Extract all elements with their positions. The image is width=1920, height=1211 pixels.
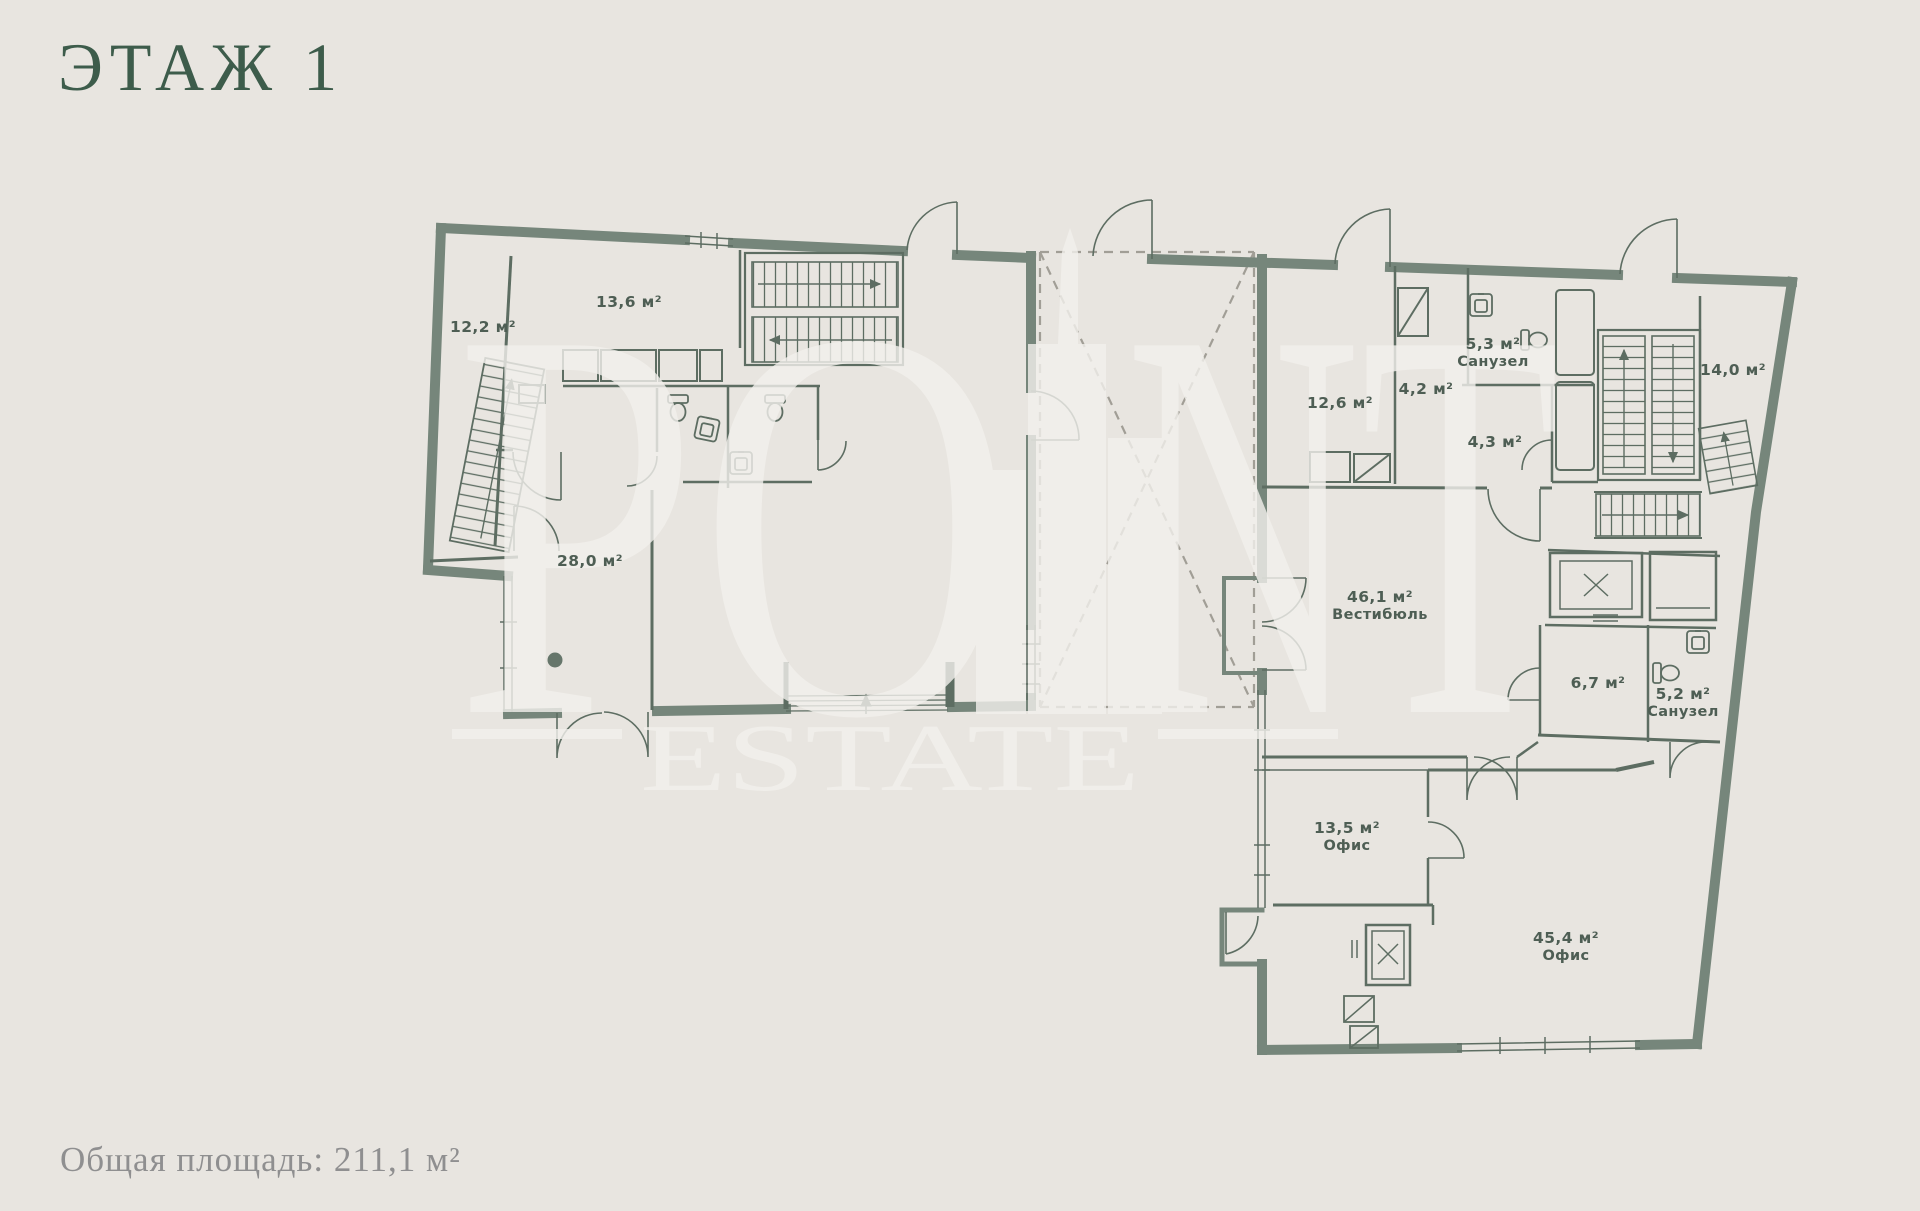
- watermark-text-estate: ESTATE: [640, 704, 1140, 811]
- room-area-label-room-28-0: 28,0 м²: [557, 552, 623, 570]
- staircase-left-room-icon: [450, 358, 544, 552]
- staircase-right-lower-icon: [1596, 494, 1700, 536]
- room-name-label-room-46-1: Вестибюль: [1332, 607, 1428, 623]
- left-building-fixtures: [548, 395, 786, 668]
- toilet-icon: [1521, 330, 1547, 350]
- floor-plan-page: ЭТАЖ 1: [0, 0, 1920, 1211]
- room-name-label-room-13-5: Офис: [1323, 838, 1370, 854]
- sink-icon: [694, 416, 720, 442]
- floor-plan-drawing: PO NT ESTATE 12,2 м²13,6 м²28,0 м²12,6 м…: [0, 0, 1920, 1211]
- watermark-rule-left: [452, 729, 622, 739]
- staircase-central-icon: [745, 253, 903, 365]
- right-building-doors: [1093, 200, 1706, 954]
- total-area-note: Общая площадь: 211,1 м²: [60, 1140, 461, 1180]
- watermark-text-po: PO: [455, 214, 1015, 834]
- room-name-label-room-5-2: Санузел: [1647, 704, 1719, 720]
- right-building-outer-walls: [1152, 259, 1792, 1050]
- room-area-label-room-12-2: 12,2 м²: [450, 318, 516, 336]
- toilet-icon: [765, 395, 785, 421]
- watermark-rule-right: [1158, 729, 1338, 739]
- column-marker: [548, 653, 563, 668]
- room-area-label-room-12-6: 12,6 м²: [1307, 394, 1373, 412]
- sink-icon: [1687, 631, 1709, 653]
- courtyard-dashed-area: [1040, 252, 1254, 707]
- room-area-label-room-5-2: 5,2 м²: [1656, 685, 1711, 703]
- room-area-label-room-4-3: 4,3 м²: [1468, 433, 1523, 451]
- room-area-label-room-6-7: 6,7 м²: [1571, 674, 1626, 692]
- room-area-label-room-45-4: 45,4 м²: [1533, 929, 1599, 947]
- right-building-windows: [1254, 690, 1640, 1054]
- room-name-label-room-5-3: Санузел: [1457, 354, 1529, 370]
- room-name-label-room-45-4: Офис: [1542, 948, 1589, 964]
- room-area-label-room-13-5: 13,5 м²: [1314, 819, 1380, 837]
- room-area-label-room-4-2: 4,2 м²: [1399, 380, 1454, 398]
- room-area-label-room-13-6: 13,6 м²: [596, 293, 662, 311]
- elevator-icon: [1344, 925, 1410, 1048]
- sink-icon: [730, 452, 752, 474]
- staircase-right-upper-icon: [1598, 330, 1700, 480]
- staircase-small-icon: [1699, 420, 1758, 493]
- toilet-icon: [668, 395, 688, 421]
- watermark-tower-icon: [976, 228, 1162, 714]
- room-area-label-room-14-0: 14,0 м²: [1700, 361, 1766, 379]
- toilet-icon: [1653, 663, 1679, 683]
- watermark-text-nt: NT: [1125, 214, 1560, 834]
- right-building: [1093, 200, 1792, 1054]
- left-building: [428, 202, 1079, 758]
- elevator-icon: [1550, 553, 1642, 621]
- room-area-label-room-46-1: 46,1 м²: [1347, 588, 1413, 606]
- shaft-box: [1650, 552, 1716, 620]
- cubicle-lockers: [519, 350, 722, 403]
- sink-icon: [1470, 294, 1492, 316]
- room-area-label-room-5-3: 5,3 м²: [1466, 335, 1521, 353]
- room-labels: 12,2 м²13,6 м²28,0 м²12,6 м²4,2 м²5,3 м²…: [450, 293, 1766, 964]
- entrance-steps-left-building: [786, 695, 948, 714]
